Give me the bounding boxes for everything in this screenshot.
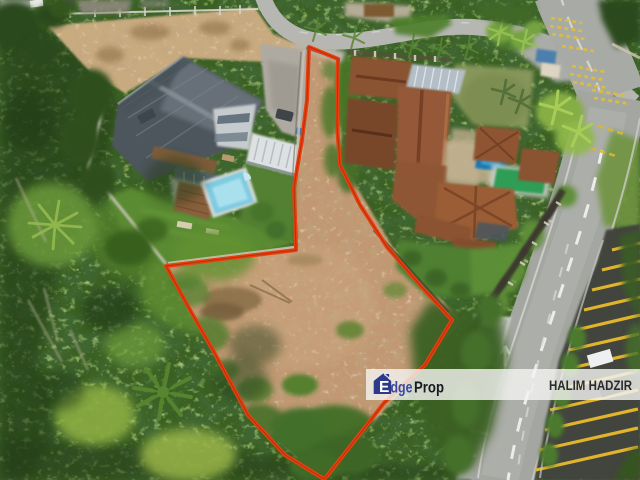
svg-text:dge: dge [391, 380, 413, 397]
svg-text:E: E [379, 379, 389, 396]
svg-text:HALIM HADZIR: HALIM HADZIR [549, 378, 632, 393]
svg-text:Prop: Prop [414, 380, 444, 397]
